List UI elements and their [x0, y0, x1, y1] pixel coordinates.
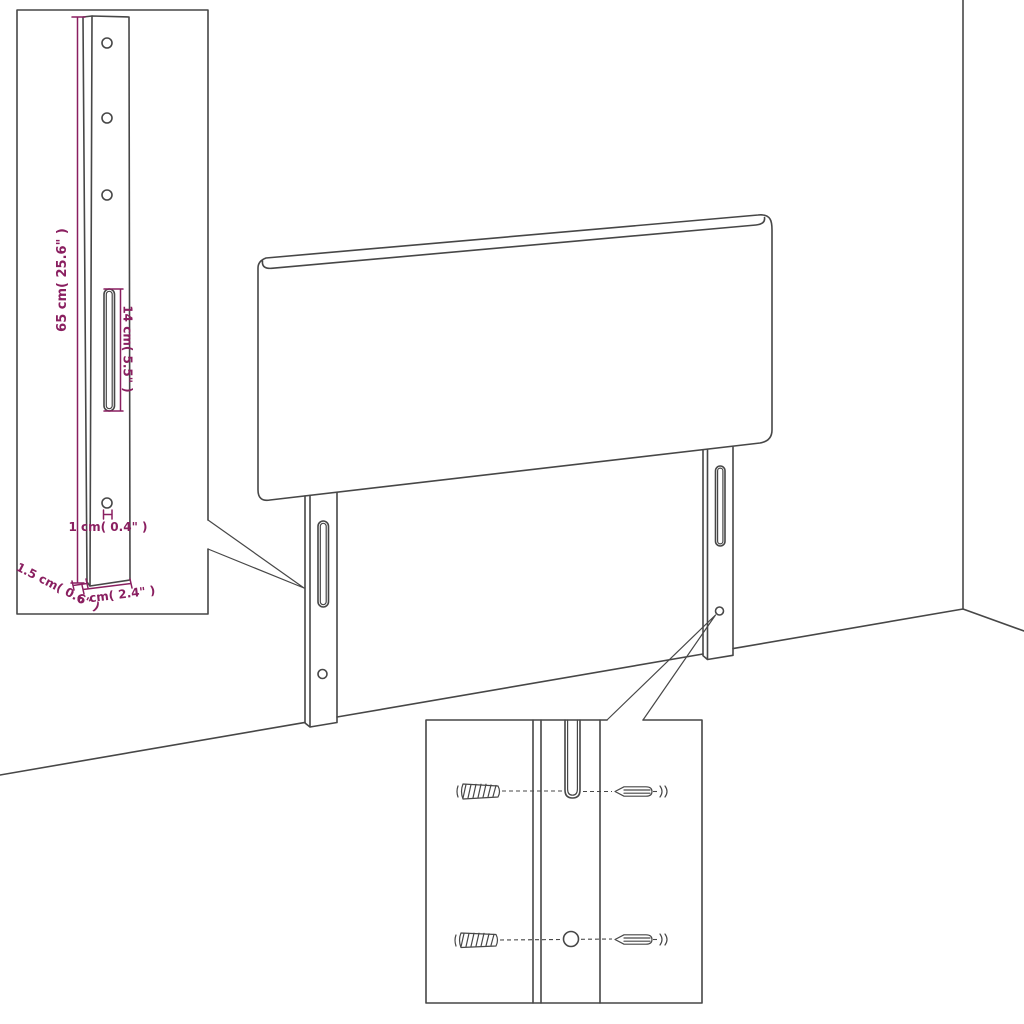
screw-top	[615, 786, 667, 797]
inset-mounting-detail	[426, 720, 702, 1003]
left-leg-slot-outer	[318, 521, 329, 607]
mounting-leg-hole	[564, 932, 579, 947]
bracket-thickness-dimension: 1.5 cm( 0.6" )	[14, 560, 102, 614]
hole-diameter-label: 1 cm( 0.4" )	[69, 520, 148, 534]
assembly-diagram: 65 cm( 25.6" ) 14 cm( 5.5" ) 1 cm( 0.4" …	[0, 0, 1024, 1024]
right-leg-screw-hole	[716, 607, 724, 615]
screw-thread-squiggle	[660, 934, 667, 945]
floor-line-left	[0, 609, 963, 775]
slot-length-label: 14 cm( 5.5" )	[121, 305, 135, 392]
mounting-leg-edges	[533, 720, 600, 1003]
left-leg-edges	[305, 493, 337, 728]
screw-thread-squiggle	[660, 786, 667, 797]
bracket-front-face	[90, 16, 130, 586]
right-leg-slot-outer	[716, 466, 726, 546]
headboard-panel	[258, 215, 772, 500]
left-leg-screw-hole	[318, 670, 327, 679]
bracket-height-label: 65 cm( 25.6" )	[55, 228, 70, 332]
headboard-left-leg	[305, 493, 337, 728]
mounting-leg-slot-inner	[568, 720, 578, 795]
inset-bracket-detail: 65 cm( 25.6" ) 14 cm( 5.5" ) 1 cm( 0.4" …	[14, 10, 208, 614]
headboard-outline	[258, 215, 772, 500]
bracket-callout-lines	[208, 520, 304, 588]
floor-line-right	[963, 609, 1024, 631]
dashed-line-plug-to-hole	[500, 940, 560, 941]
screw-bottom	[615, 934, 667, 945]
assembly-diagram-page: 65 cm( 25.6" ) 14 cm( 5.5" ) 1 cm( 0.4" …	[0, 0, 1024, 1024]
left-leg-slot-inner	[320, 523, 326, 604]
right-leg-slot-inner	[718, 468, 723, 544]
wall-plug-bottom	[455, 933, 498, 948]
inset-mounting-border	[426, 720, 702, 1003]
bracket-height-dimension: 65 cm( 25.6" )	[55, 17, 85, 583]
bracket-thickness-label: 1.5 cm( 0.6" )	[14, 560, 102, 614]
wall-plug-top	[457, 784, 500, 799]
